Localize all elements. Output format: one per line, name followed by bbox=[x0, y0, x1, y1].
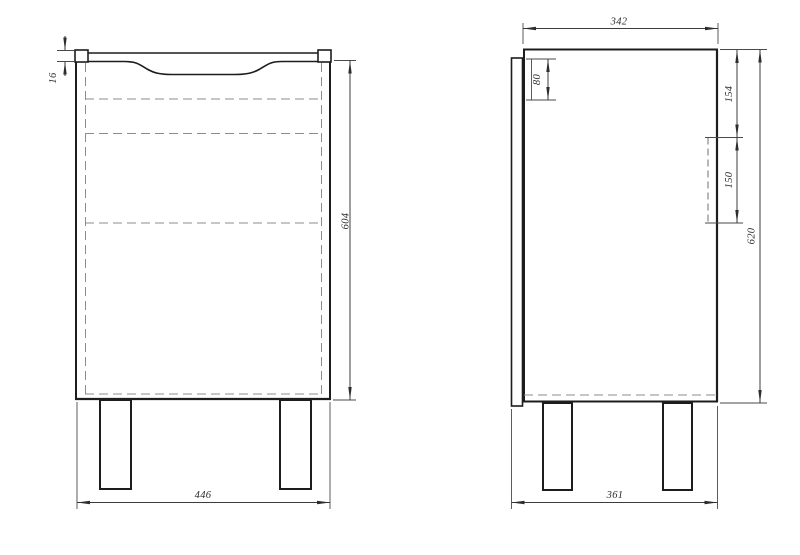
handle-recess-line bbox=[88, 62, 318, 75]
dim-label-620: 620 bbox=[747, 227, 758, 244]
dim-top-offset: 80 bbox=[526, 59, 556, 100]
front-right-leg bbox=[280, 400, 311, 489]
dim-label-150: 150 bbox=[724, 171, 735, 188]
side-back-leg bbox=[663, 403, 692, 490]
side-view: 342 80 154 150 620 bbox=[512, 17, 768, 510]
dim-body-depth: 342 bbox=[523, 17, 718, 45]
dim-label-16: 16 bbox=[48, 72, 59, 84]
front-hidden-lines bbox=[85, 63, 322, 394]
dim-label-80: 80 bbox=[532, 74, 543, 86]
front-top-right-cap bbox=[318, 50, 331, 62]
dim-label-342: 342 bbox=[610, 17, 628, 28]
dim-label-446: 446 bbox=[195, 490, 212, 501]
dim-front-height: 604 bbox=[333, 61, 356, 401]
dim-label-604: 604 bbox=[341, 212, 352, 229]
front-top-left-cap bbox=[75, 50, 88, 62]
front-view: 16 604 446 bbox=[48, 36, 356, 509]
dim-label-361: 361 bbox=[606, 490, 624, 501]
drawing-canvas: 16 604 446 bbox=[0, 0, 800, 555]
dim-bracket-height: 150 bbox=[724, 138, 737, 224]
front-left-leg bbox=[100, 400, 131, 489]
cabinet-technical-drawing: 16 604 446 bbox=[0, 0, 800, 555]
dim-top-thickness: 16 bbox=[48, 36, 74, 84]
dim-label-154: 154 bbox=[724, 85, 735, 102]
side-front-leg bbox=[543, 403, 572, 490]
side-door-strip bbox=[512, 58, 523, 406]
dim-bracket-offset: 154 bbox=[724, 50, 737, 138]
